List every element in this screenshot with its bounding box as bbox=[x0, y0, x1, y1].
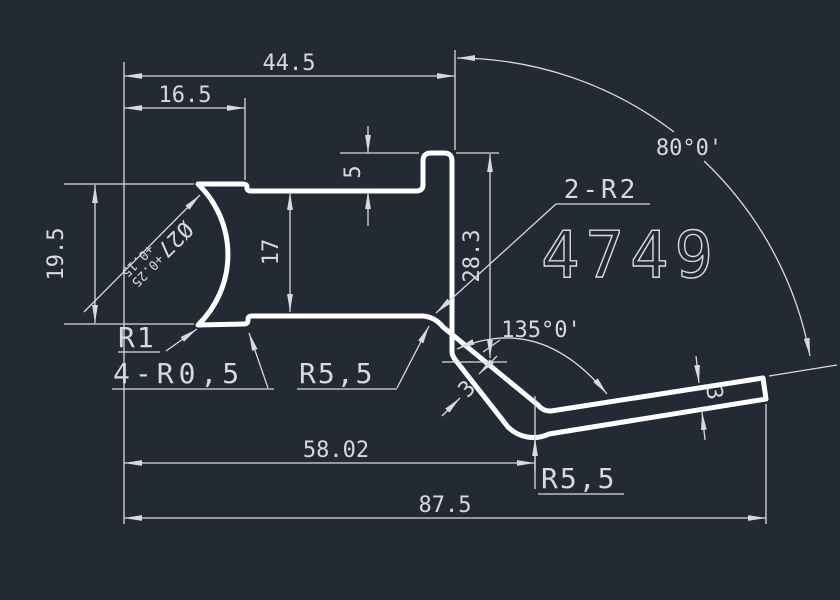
arc-80deg-upper bbox=[457, 58, 674, 132]
part-outline[interactable] bbox=[198, 153, 766, 438]
dim-tab-height: 5 bbox=[341, 165, 366, 178]
dim-band-width: 16.5 bbox=[159, 83, 212, 108]
dim-top-width: 44.5 bbox=[263, 51, 316, 76]
cad-drawing-canvas[interactable]: 44.5 16.5 5 17 19.5 28.3 58.02 87.5 80°0… bbox=[0, 0, 840, 600]
note-inner-fillet: R5,5 bbox=[299, 357, 374, 390]
note-tab-corners: 2-R2 bbox=[564, 175, 639, 205]
cad-viewport[interactable]: 44.5 16.5 5 17 19.5 28.3 58.02 87.5 80°0… bbox=[0, 0, 840, 600]
tick-thickness-bend-b bbox=[442, 398, 460, 416]
dim-bend-angle: 135°0' bbox=[501, 318, 580, 343]
tick-thickness-end-a bbox=[696, 356, 699, 383]
leader-r1 bbox=[166, 329, 197, 351]
arc-80deg-lower bbox=[704, 161, 810, 356]
dim-left-height: 19.5 bbox=[44, 228, 69, 281]
part-number: 4749 bbox=[541, 219, 719, 293]
tick-thickness-end-b bbox=[702, 412, 705, 440]
dim-overall-width: 87.5 bbox=[419, 493, 472, 518]
dim-bend-thickness: 3 bbox=[454, 376, 481, 403]
dim-mid-height: 17 bbox=[259, 239, 284, 266]
leader-135deg bbox=[483, 340, 500, 352]
arc-135deg bbox=[457, 338, 607, 394]
dim-diameter-group: Ø27 +0.25 +0.15 bbox=[118, 212, 197, 291]
dim-bend-width: 58.02 bbox=[303, 438, 369, 463]
dim-end-thickness: 3 bbox=[700, 385, 727, 402]
ext-strip-top bbox=[769, 365, 837, 376]
note-arc-fillet: R1 bbox=[118, 321, 156, 354]
leader-r5-5-inner bbox=[397, 326, 429, 388]
note-outer-fillet: R5,5 bbox=[541, 462, 616, 495]
note-step-corners: 4-R0,5 bbox=[113, 357, 244, 390]
leader-4-r0-5 bbox=[249, 333, 268, 388]
dim-right-height: 28.3 bbox=[460, 230, 485, 283]
dim-strip-angle: 80°0' bbox=[656, 136, 722, 161]
